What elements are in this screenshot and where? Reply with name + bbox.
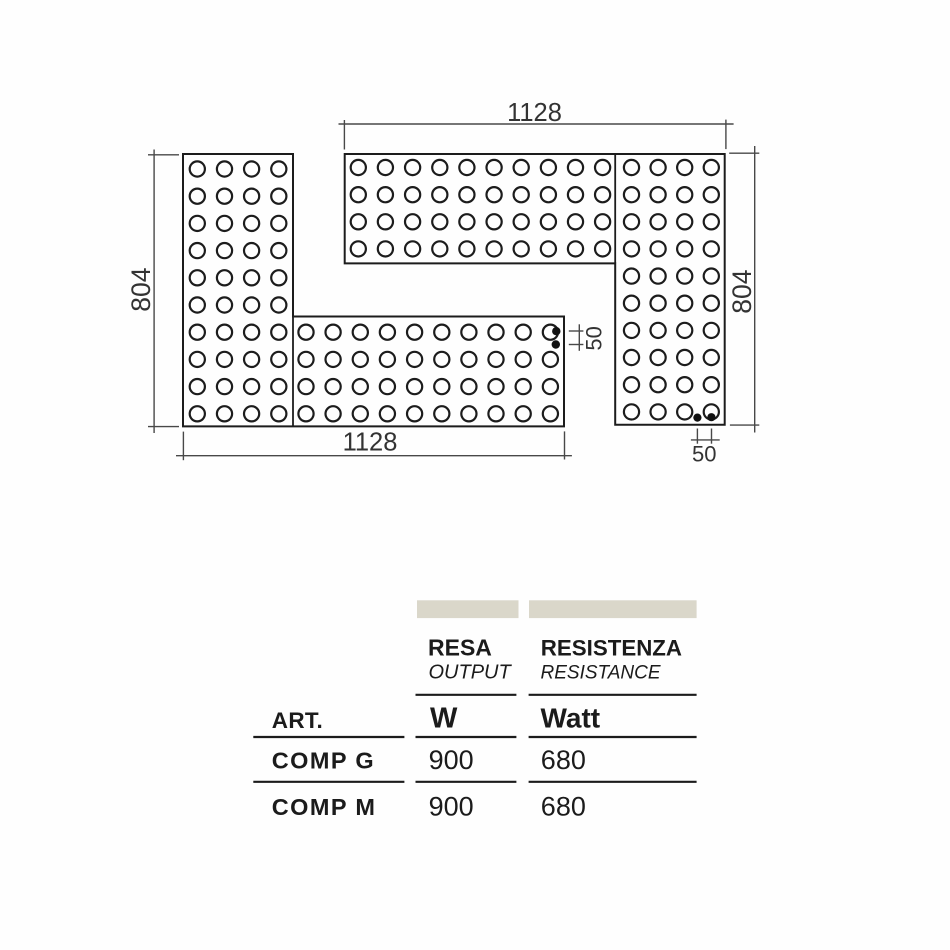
svg-text:900: 900 bbox=[429, 745, 474, 775]
svg-text:COMP G: COMP G bbox=[272, 747, 375, 773]
svg-text:RESISTANCE: RESISTANCE bbox=[541, 663, 661, 684]
svg-text:680: 680 bbox=[541, 792, 586, 822]
svg-text:804: 804 bbox=[126, 267, 156, 311]
svg-text:1128: 1128 bbox=[343, 429, 398, 457]
svg-text:Watt: Watt bbox=[541, 703, 601, 734]
svg-text:COMP M: COMP M bbox=[272, 794, 377, 820]
svg-text:W: W bbox=[430, 703, 458, 735]
svg-text:OUTPUT: OUTPUT bbox=[429, 662, 513, 684]
svg-text:RESA: RESA bbox=[428, 635, 492, 661]
svg-text:900: 900 bbox=[429, 792, 474, 822]
svg-text:804: 804 bbox=[727, 269, 757, 313]
svg-text:50: 50 bbox=[582, 326, 607, 350]
svg-text:ART.: ART. bbox=[272, 708, 323, 733]
svg-text:1128: 1128 bbox=[507, 99, 562, 127]
svg-text:RESISTENZA: RESISTENZA bbox=[541, 636, 682, 661]
svg-text:50: 50 bbox=[692, 442, 716, 467]
svg-text:680: 680 bbox=[541, 745, 586, 775]
